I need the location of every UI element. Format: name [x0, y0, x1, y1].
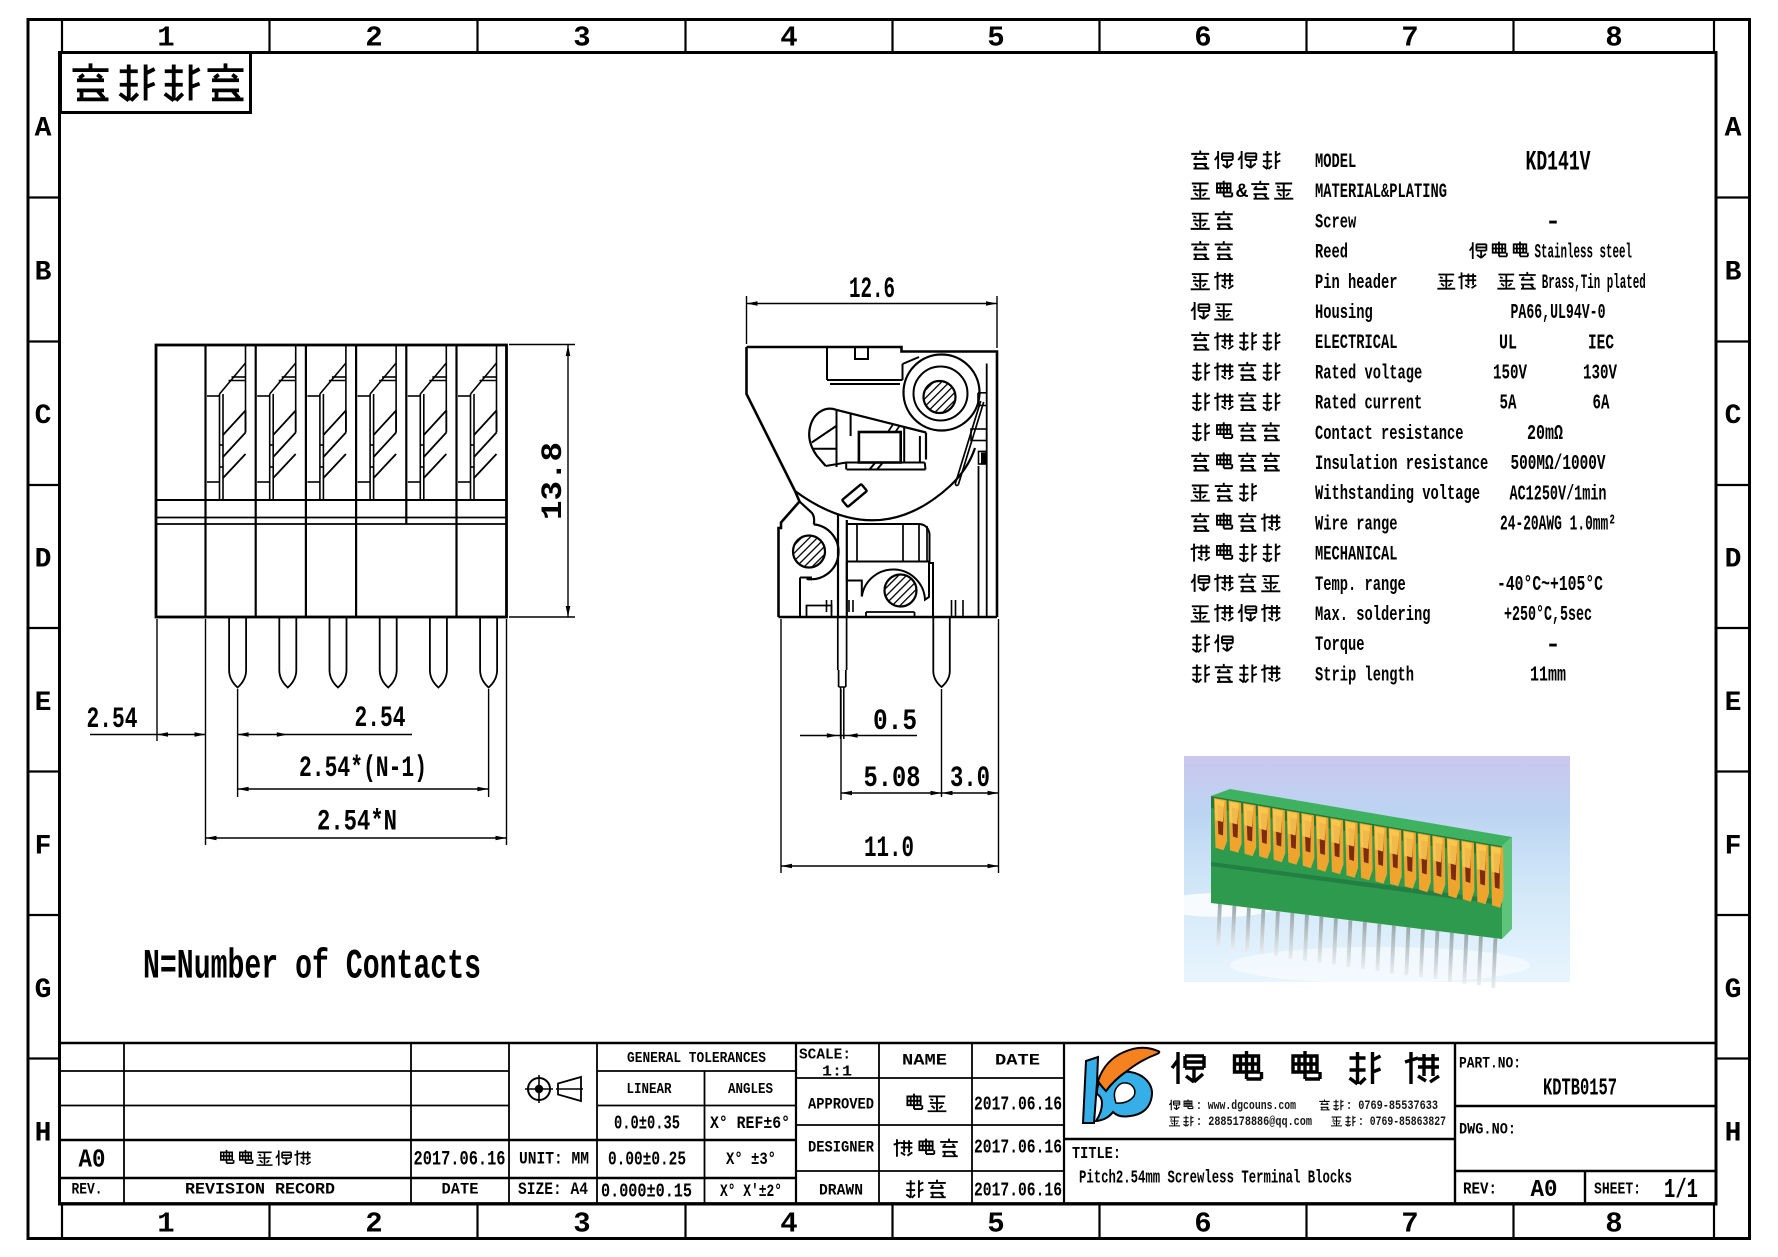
svg-text:Pitch2.54mm Screwless Terminal: Pitch2.54mm Screwless Terminal Blocks [1079, 1169, 1352, 1189]
svg-text:Housing: Housing [1315, 302, 1373, 325]
svg-text:AC1250V/1min: AC1250V/1min [1510, 483, 1607, 506]
svg-text:A0: A0 [79, 1144, 106, 1174]
svg-text:2.54*(N-1): 2.54*(N-1) [299, 752, 427, 786]
svg-text:Max. soldering: Max. soldering [1315, 604, 1431, 627]
svg-text:6A: 6A [1593, 393, 1610, 416]
svg-text:Temp. range: Temp. range [1315, 574, 1406, 597]
svg-text:B: B [1725, 258, 1742, 289]
svg-text:DATE: DATE [995, 1051, 1040, 1069]
svg-text:F: F [35, 832, 52, 863]
svg-text:NAME: NAME [902, 1051, 947, 1069]
svg-text:A: A [1725, 114, 1742, 145]
svg-text:2017.06.16: 2017.06.16 [974, 1094, 1062, 1116]
svg-text:&: & [1236, 181, 1248, 204]
svg-text:F: F [1725, 832, 1742, 863]
svg-text:APPROVED: APPROVED [808, 1095, 874, 1113]
svg-text:D: D [1725, 545, 1742, 576]
svg-text:B: B [35, 258, 52, 289]
svg-text:C: C [35, 401, 52, 432]
svg-text:12.6: 12.6 [849, 273, 895, 307]
svg-text:G: G [35, 975, 52, 1006]
svg-text:2017.06.16: 2017.06.16 [974, 1137, 1062, 1159]
svg-text:2017.06.16: 2017.06.16 [414, 1148, 506, 1171]
svg-text:H: H [1725, 1119, 1742, 1150]
svg-text:Pin header: Pin header [1315, 272, 1398, 295]
svg-text:Reed: Reed [1315, 242, 1348, 265]
svg-text:3: 3 [573, 21, 590, 54]
svg-text:-: - [1545, 210, 1561, 237]
svg-text:-: - [1545, 632, 1561, 659]
svg-text:DRAWN: DRAWN [819, 1181, 863, 1199]
svg-text:Wire range: Wire range [1315, 513, 1398, 536]
svg-text:+250°C,5sec: +250°C,5sec [1504, 604, 1592, 627]
svg-text:0.5: 0.5 [873, 705, 917, 739]
svg-text:Withstanding voltage: Withstanding voltage [1315, 483, 1480, 506]
svg-text:: www.dgcouns.com: : www.dgcouns.com [1196, 1099, 1296, 1113]
svg-text:1: 1 [157, 21, 174, 54]
svg-text:H: H [35, 1119, 52, 1150]
svg-text:MODEL: MODEL [1315, 151, 1356, 174]
svg-text:24-20AWG 1.0mm²: 24-20AWG 1.0mm² [1500, 514, 1616, 537]
svg-text:Insulation resistance: Insulation resistance [1315, 453, 1488, 476]
svg-text:2017.06.16: 2017.06.16 [974, 1180, 1062, 1202]
svg-text:MATERIAL&PLATING: MATERIAL&PLATING [1315, 181, 1447, 204]
svg-text:6: 6 [1194, 21, 1211, 54]
svg-text:SIZE: A4: SIZE: A4 [518, 1180, 588, 1200]
svg-text:PART.NO:: PART.NO: [1459, 1054, 1521, 1072]
svg-text:Torque: Torque [1315, 634, 1365, 657]
svg-text:ANGLES: ANGLES [728, 1081, 773, 1098]
svg-text:13.8: 13.8 [537, 442, 571, 520]
svg-text:5: 5 [987, 1207, 1004, 1240]
svg-text:20mΩ: 20mΩ [1527, 423, 1563, 446]
svg-text:DATE: DATE [442, 1180, 479, 1198]
svg-text:SHEET:: SHEET: [1594, 1180, 1641, 1199]
svg-text:: 0769-85863827: : 0769-85863827 [1358, 1115, 1446, 1129]
svg-text:2: 2 [365, 1207, 382, 1240]
svg-text:11.0: 11.0 [864, 832, 914, 866]
svg-text:7: 7 [1401, 1207, 1418, 1240]
svg-text:: 2885178886@qq.com: : 2885178886@qq.com [1196, 1115, 1312, 1129]
svg-text:SCALE:: SCALE: [799, 1047, 851, 1064]
svg-text:A: A [35, 114, 52, 145]
svg-text:E: E [35, 688, 52, 719]
svg-text:3: 3 [573, 1207, 590, 1240]
svg-text:2.54: 2.54 [87, 703, 138, 737]
svg-text:7: 7 [1401, 21, 1418, 54]
svg-text:IEC: IEC [1588, 332, 1614, 355]
svg-text:4: 4 [780, 21, 797, 54]
svg-text:2.54: 2.54 [355, 702, 406, 736]
svg-text:GENERAL TOLERANCES: GENERAL TOLERANCES [627, 1051, 766, 1067]
svg-text:1/1: 1/1 [1664, 1176, 1698, 1206]
svg-text:2: 2 [365, 21, 382, 54]
svg-text:Screw: Screw [1315, 211, 1357, 234]
svg-text:500MΩ/1000V: 500MΩ/1000V [1511, 453, 1606, 476]
svg-text:DWG.NO:: DWG.NO: [1459, 1120, 1516, 1138]
svg-text:-40°C~+105°C: -40°C~+105°C [1497, 574, 1603, 597]
svg-text:3.0: 3.0 [950, 762, 990, 796]
svg-text:4: 4 [780, 1207, 797, 1240]
svg-text:C: C [1725, 401, 1742, 432]
svg-text:2.54*N: 2.54*N [317, 806, 397, 840]
svg-text:8: 8 [1605, 21, 1622, 54]
svg-text:DESIGNER: DESIGNER [808, 1138, 875, 1156]
svg-text:D: D [35, 545, 52, 576]
svg-text:Rated voltage: Rated voltage [1315, 362, 1422, 385]
svg-text:1: 1 [157, 1207, 174, 1240]
svg-text:11mm: 11mm [1530, 665, 1566, 688]
svg-text:TITLE:: TITLE: [1072, 1145, 1121, 1164]
svg-text:X° X'±2°: X° X'±2° [720, 1182, 782, 1202]
svg-text:X° REF±6°: X° REF±6° [710, 1114, 790, 1134]
svg-text:UL: UL [1499, 332, 1517, 355]
svg-text:G: G [1725, 975, 1742, 1006]
svg-text:KD141V: KD141V [1526, 148, 1591, 179]
svg-text:8: 8 [1605, 1207, 1622, 1240]
svg-text:REV.: REV. [72, 1180, 103, 1198]
svg-text:X° ±3°: X° ±3° [726, 1150, 776, 1170]
svg-text:Brass,Tin plated: Brass,Tin plated [1542, 272, 1646, 295]
svg-text:KDTB0157: KDTB0157 [1543, 1076, 1617, 1103]
svg-text:6: 6 [1194, 1207, 1211, 1240]
svg-text:1:1: 1:1 [822, 1064, 852, 1081]
svg-text:A0: A0 [1531, 1177, 1558, 1204]
svg-text:MECHANICAL: MECHANICAL [1315, 544, 1398, 567]
svg-text:LINEAR: LINEAR [627, 1081, 672, 1098]
svg-text:Stainless steel: Stainless steel [1535, 242, 1633, 265]
svg-text:UNIT: MM: UNIT: MM [519, 1150, 589, 1170]
svg-text:REVISION RECORD: REVISION RECORD [185, 1180, 335, 1198]
svg-text:PA66,UL94V-0: PA66,UL94V-0 [1511, 302, 1606, 325]
svg-text:150V: 150V [1493, 363, 1527, 386]
svg-text:5: 5 [987, 21, 1004, 54]
svg-text:0.000±0.15: 0.000±0.15 [601, 1181, 692, 1203]
svg-text:E: E [1725, 688, 1742, 719]
svg-text:5.08: 5.08 [864, 762, 921, 796]
svg-text:Rated current: Rated current [1315, 393, 1422, 416]
svg-text:5A: 5A [1500, 393, 1517, 416]
svg-text:REV:: REV: [1463, 1180, 1497, 1199]
svg-text:ELECTRICAL: ELECTRICAL [1315, 332, 1398, 355]
svg-text:N=Number of Contacts: N=Number of Contacts [143, 942, 481, 990]
svg-text:Strip length: Strip length [1315, 664, 1414, 687]
svg-text:0.00±0.25: 0.00±0.25 [608, 1149, 686, 1171]
svg-text:0.0±0.35: 0.0±0.35 [614, 1113, 680, 1135]
svg-text:: 0769-85537633: : 0769-85537633 [1346, 1099, 1438, 1113]
svg-text:130V: 130V [1583, 363, 1617, 386]
svg-text:Contact resistance: Contact resistance [1315, 423, 1464, 446]
